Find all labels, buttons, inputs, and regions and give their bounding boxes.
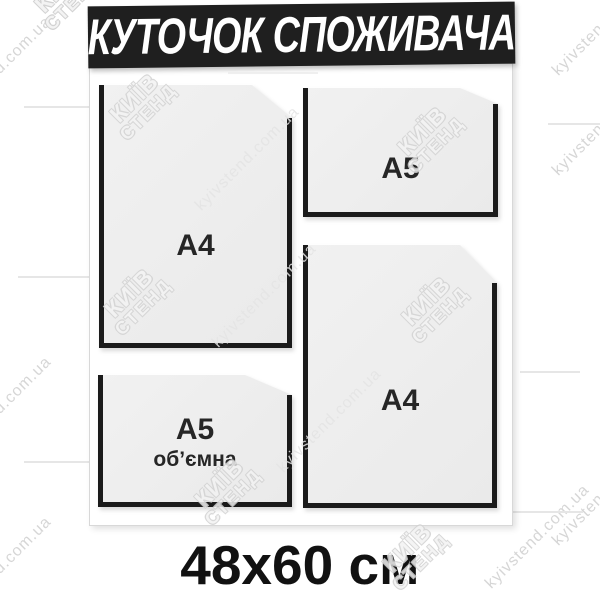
pocket-border-bottom	[98, 502, 292, 507]
watermark-site-text: kyivstend.com.ua	[0, 13, 56, 124]
pocket-size-label: A5 об’ємна	[98, 415, 292, 470]
pocket-size-label: A4	[99, 231, 292, 261]
watermark-site-text: kyivstend.com.ua	[0, 353, 56, 464]
stand-title: КУТОЧОК СПОЖИВАЧА	[87, 3, 515, 66]
pocket-size-label: A5	[303, 154, 498, 184]
pocket-film	[303, 245, 497, 508]
watermark-site-text: kyivstend.com.ua	[549, 0, 600, 80]
pocket-a5-top-right: A5	[303, 88, 498, 217]
pocket-border-bottom	[99, 343, 292, 348]
watermark-line	[24, 106, 90, 108]
watermark-line	[18, 276, 92, 278]
pocket-size-sublabel: об’ємна	[98, 449, 292, 470]
size-caption: 48x60 см	[0, 533, 600, 597]
pocket-film	[99, 85, 292, 348]
watermark-line	[520, 371, 580, 373]
pocket-border-bottom	[303, 503, 497, 508]
watermark-line	[24, 461, 92, 463]
pocket-border-bottom	[303, 212, 498, 217]
pocket-border-left	[303, 88, 308, 217]
product-image: kyivstend.com.ua kyivstend.com.ua kyivst…	[0, 0, 600, 600]
pocket-size-label: A4	[303, 386, 497, 416]
pocket-a4-top-left: A4	[99, 85, 292, 348]
pocket-border-left	[303, 245, 308, 508]
pocket-size-label-main: A5	[98, 415, 292, 445]
watermark-line	[548, 123, 600, 125]
pocket-a5-bottom-left: A5 об’ємна	[98, 375, 292, 507]
pocket-a4-bottom-right: A4	[303, 245, 497, 508]
stand-header-banner: КУТОЧОК СПОЖИВАЧА	[88, 2, 516, 69]
pocket-border-left	[99, 85, 104, 348]
